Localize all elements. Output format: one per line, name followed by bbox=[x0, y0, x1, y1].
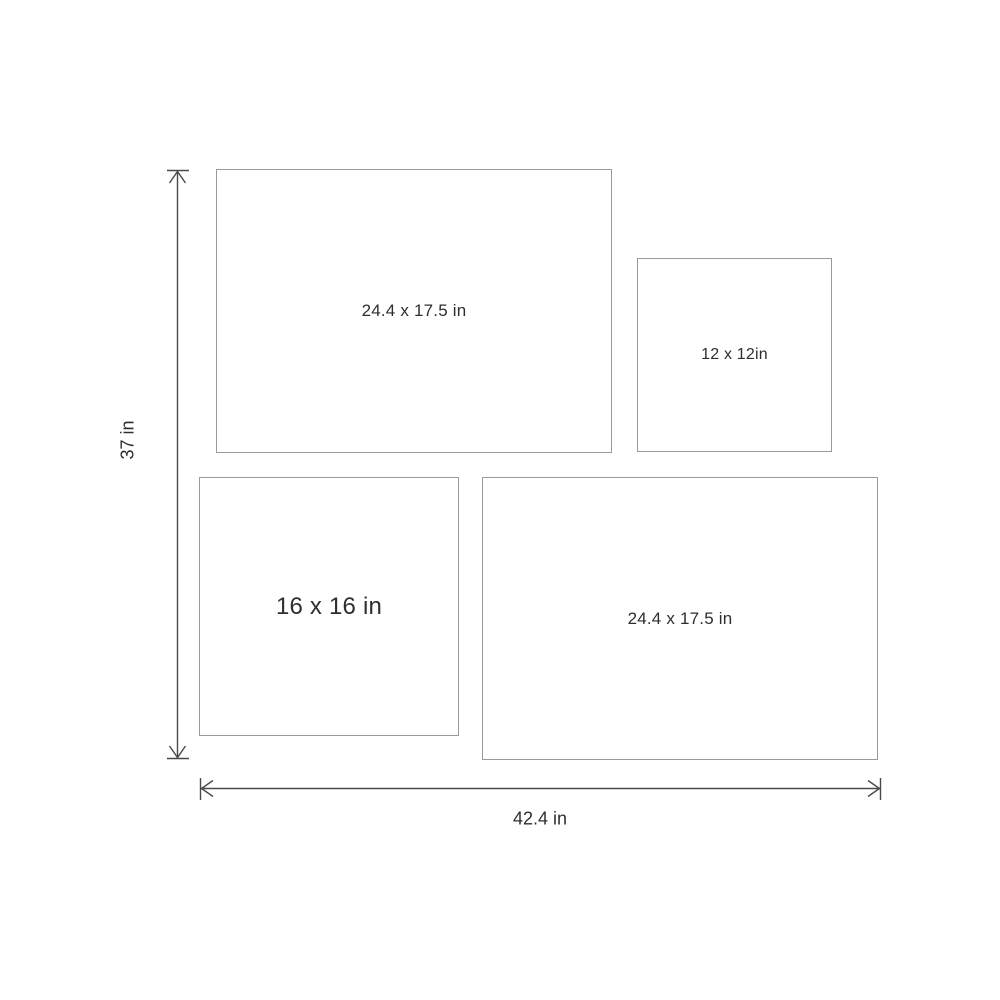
size-box-bottom-right: 24.4 x 17.5 in bbox=[482, 477, 878, 760]
height-dimension-label: 37 in bbox=[118, 420, 139, 459]
size-box-label: 16 x 16 in bbox=[276, 593, 382, 621]
width-dimension-label: 42.4 in bbox=[513, 809, 567, 830]
size-box-label: 24.4 x 17.5 in bbox=[362, 301, 467, 321]
size-box-label: 24.4 x 17.5 in bbox=[628, 609, 733, 629]
width-dimension-arrow-icon bbox=[200, 778, 881, 800]
size-box-bottom-left: 16 x 16 in bbox=[199, 477, 459, 736]
size-box-label: 12 x 12in bbox=[701, 346, 768, 364]
size-box-top-right: 12 x 12in bbox=[637, 258, 832, 452]
height-dimension-arrow-icon bbox=[167, 170, 189, 759]
size-diagram: 24.4 x 17.5 in 12 x 12in 16 x 16 in 24.4… bbox=[0, 0, 1000, 1000]
size-box-top-left: 24.4 x 17.5 in bbox=[216, 169, 612, 453]
